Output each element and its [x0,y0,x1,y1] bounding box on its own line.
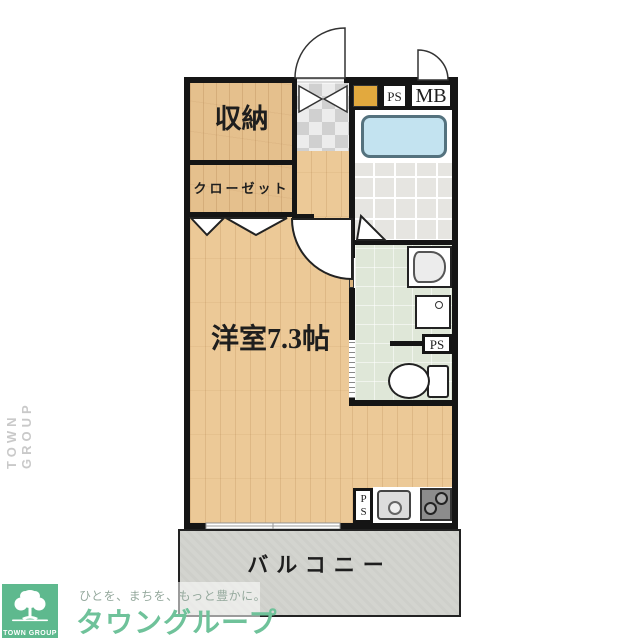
mb-label: MB [415,86,446,106]
balcony-label: バルコニー [180,555,459,576]
main-room-label: 洋室7.3帖 [188,326,353,354]
stove [420,488,452,521]
side-watermark-text: TOWN GROUP [4,343,34,469]
mb-door-arc [418,50,448,80]
toilet-tank [427,365,449,398]
kitchen-sink-drain [388,501,402,515]
entrance-door-arc [295,28,345,78]
town-group-logo: TOWN GROUP [2,584,58,638]
storage-room-label: 収納 [190,106,293,133]
ps-wash-label: PS [430,338,444,351]
bathtub [361,115,447,158]
washing-machine [407,246,452,288]
mb-box: MB [410,83,452,108]
logo-caption-text: TOWN GROUP [2,630,58,637]
wall-under-storage [190,160,296,165]
wall-washroom-kitchen [349,400,452,406]
closet-label: クローゼット [188,182,295,195]
wash-basin-faucet [435,301,443,309]
ps-top-box: PS [382,84,407,108]
ps-top-label: PS [387,90,401,103]
floorplan-page: PS MB PS PS [0,0,640,640]
toilet-bowl [388,363,430,399]
wall-main-washroom-a [349,245,355,258]
washing-machine-drum [413,251,446,283]
ps-wash-box: PS [422,334,452,354]
stove-burner-back [435,492,448,505]
shoe-cabinet [353,85,378,107]
wall-bath-washroom [352,240,452,245]
tree-icon [2,587,58,627]
brand-company-text: タウングループ [76,601,277,640]
wash-basin [415,295,451,329]
ps-wash-stub-wall [390,341,422,346]
ps-kitchen-box: PS [353,488,373,523]
stove-burner-front [424,502,437,515]
wall-hall-main-stub [292,214,314,219]
wall-closet-hall [292,83,297,217]
kitchen-sink [377,490,411,520]
washroom-door-leaf [349,258,354,288]
wall-under-closet [190,212,296,217]
ps-kitchen-label: PS [358,493,369,519]
